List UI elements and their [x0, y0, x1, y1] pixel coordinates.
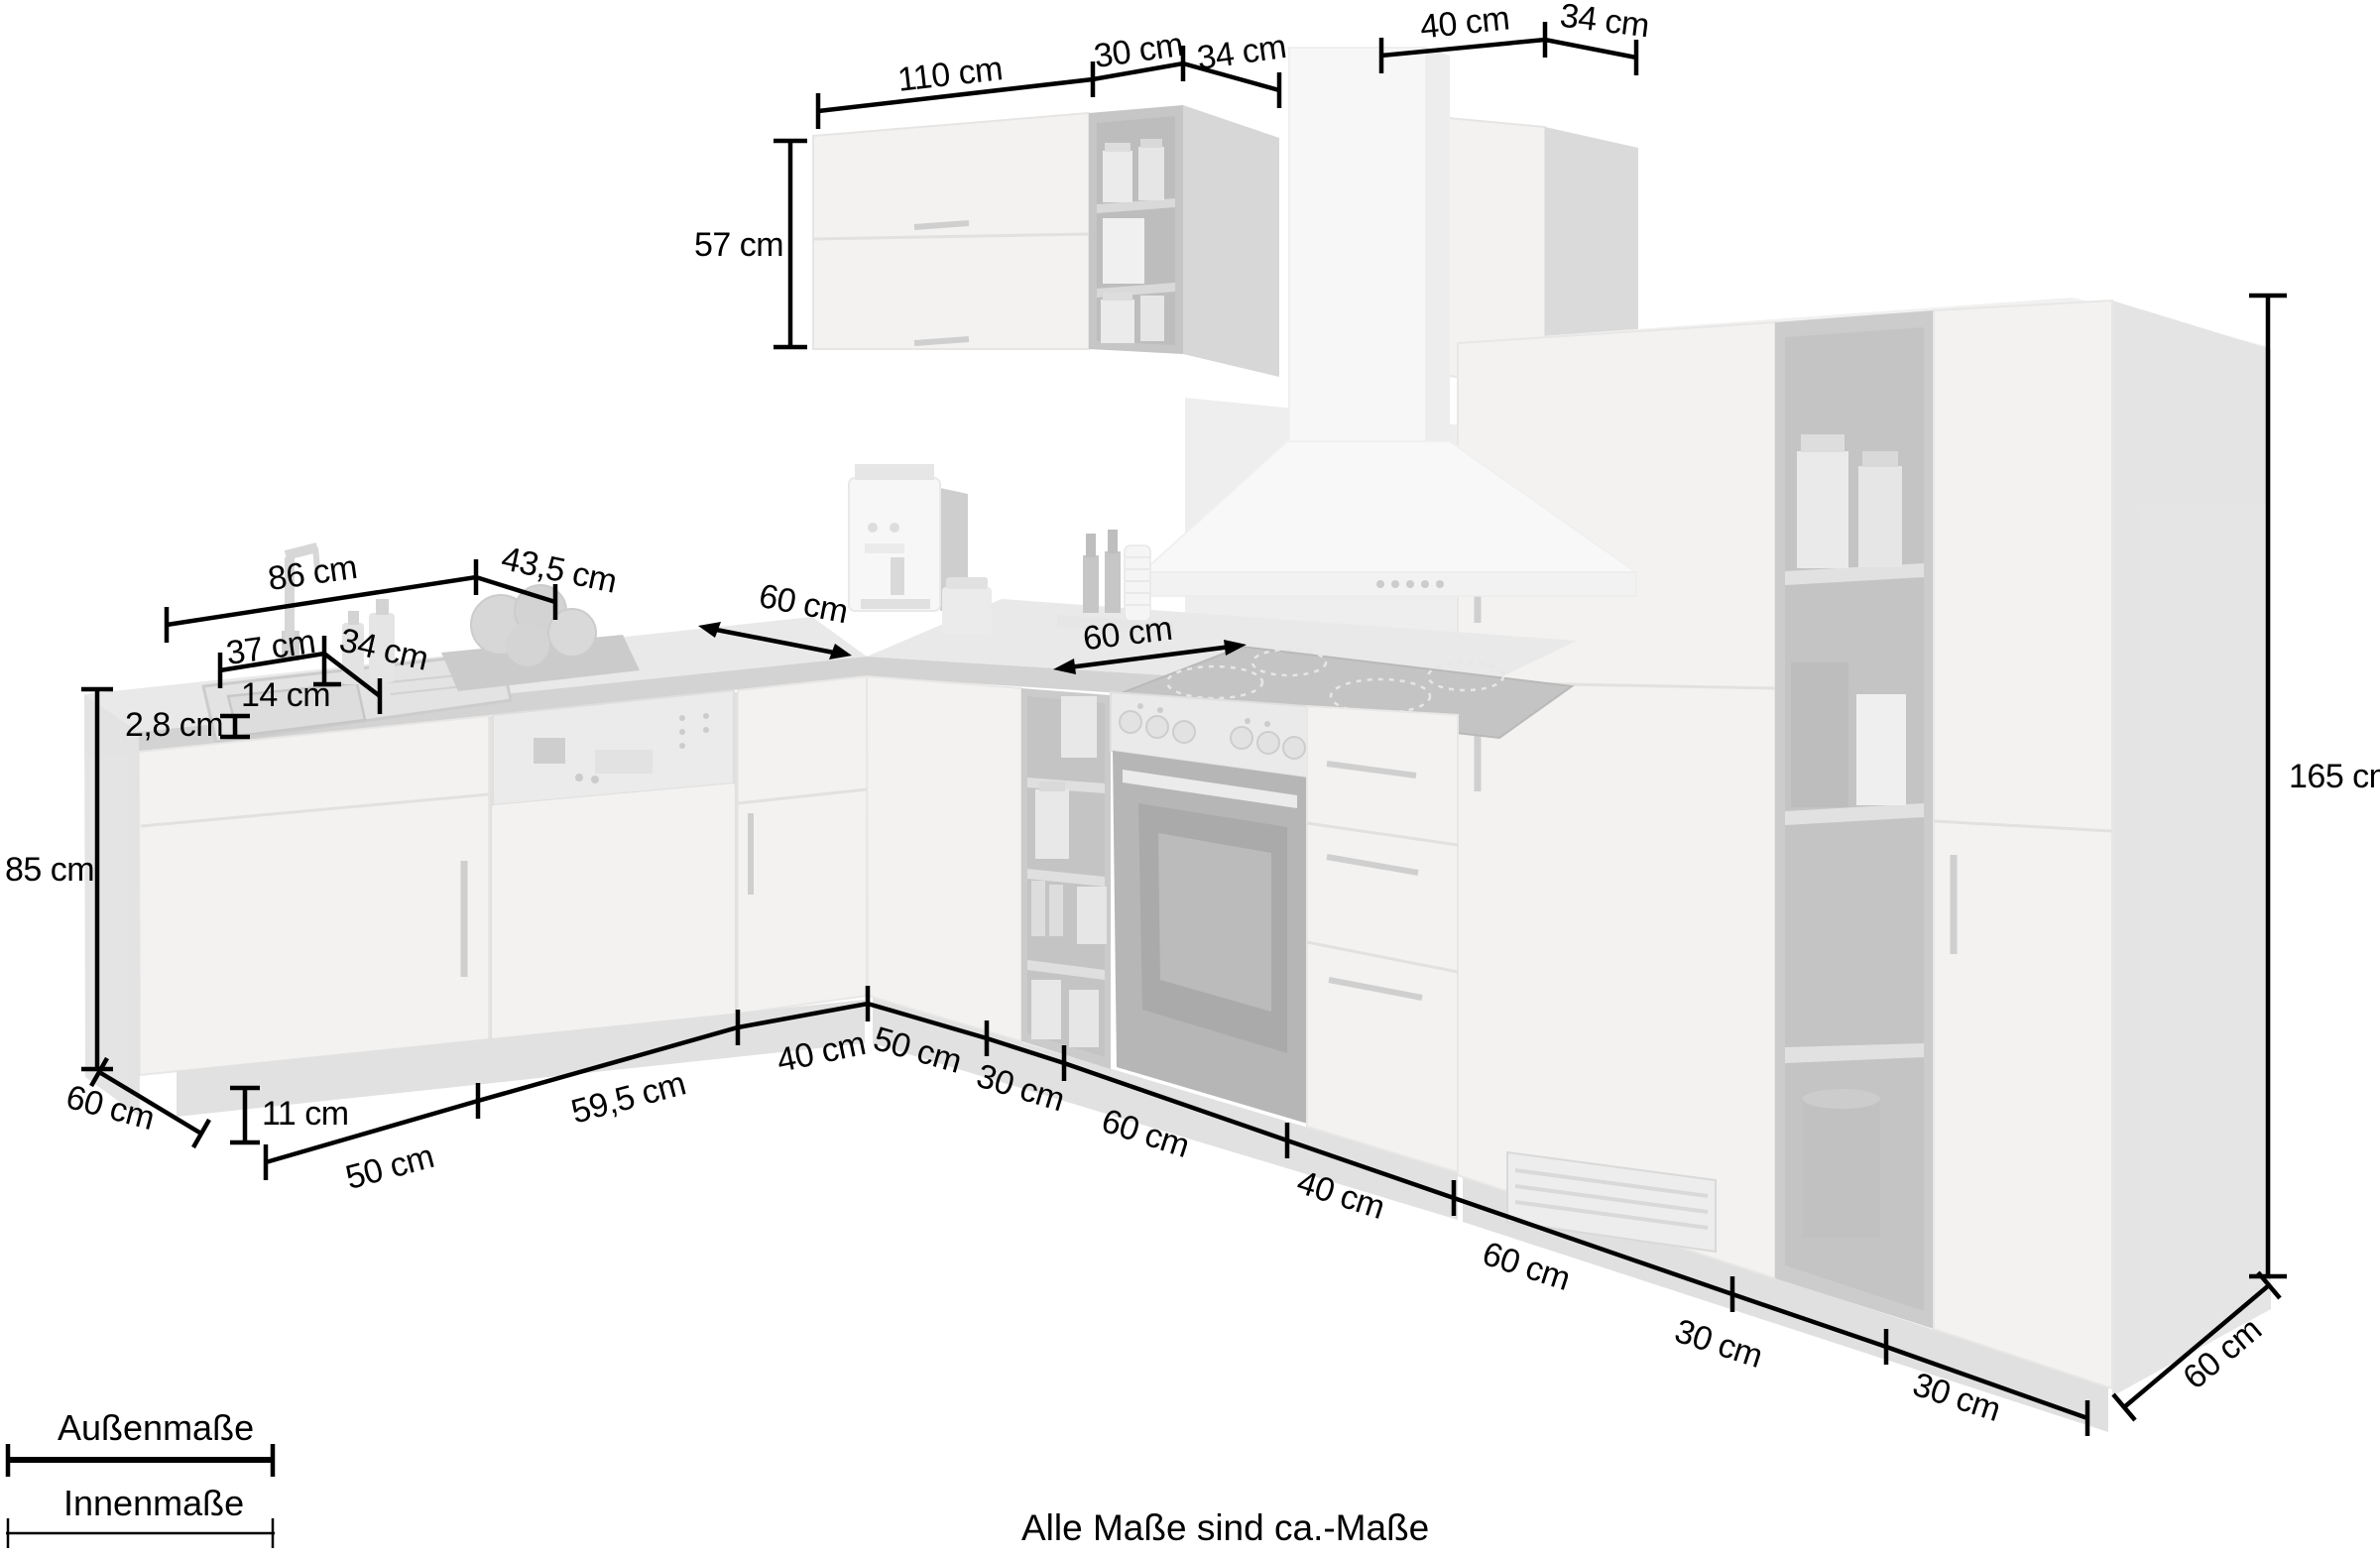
dim-label-wall-height-57: 57 cm	[694, 228, 783, 262]
door-handle	[914, 339, 969, 343]
dim-label-sink-14: 14 cm	[241, 678, 330, 712]
tall-cabinet-door	[1934, 300, 2112, 1388]
wall-side-panel-34	[1183, 105, 1279, 377]
legend-outer-line	[6, 1444, 275, 1477]
dim-label-tall-height-165: 165 cm	[2289, 760, 2380, 793]
dim-label-worktop-thickness: 2,8 cm	[125, 708, 223, 742]
product-dimension-diagram: 110 cm 30 cm 34 cm 40 cm 34 cm 57 cm 86 …	[0, 0, 2380, 1559]
oven	[1111, 692, 1311, 1125]
tall-cabinet-side-panel	[2112, 300, 2271, 1396]
dim-label-wall-right-40: 40 cm	[1418, 1, 1510, 44]
base-cabinet-40	[738, 676, 867, 1014]
dim-label-plinth-11: 11 cm	[262, 1097, 349, 1131]
kitchen-render	[84, 48, 2271, 1432]
corner-base-cabinet	[867, 676, 1021, 1041]
door-handle	[914, 223, 969, 227]
legend-inner-label: Innenmaße	[63, 1486, 244, 1521]
wall-open-shelf-30	[1089, 105, 1183, 354]
wall-cabinet-110	[813, 113, 1089, 349]
diagram-canvas	[0, 0, 2380, 1559]
legend-outer-label: Außenmaße	[58, 1410, 254, 1446]
sink-base-cabinet	[139, 716, 489, 1075]
base-open-shelf-30	[1021, 688, 1111, 1069]
drawer-unit-40	[1307, 706, 1458, 1172]
tall-open-shelf-30	[1775, 310, 1934, 1329]
left-side-panel	[84, 694, 140, 1117]
footer-note: Alle Maße sind ca.-Maße	[1021, 1509, 1429, 1546]
dishwasher	[493, 690, 734, 1039]
dim-label-base-height-85: 85 cm	[5, 853, 94, 887]
canister	[942, 577, 992, 635]
tall-cabinet-fridge	[1458, 322, 1775, 1278]
decor-vase	[1125, 545, 1150, 621]
